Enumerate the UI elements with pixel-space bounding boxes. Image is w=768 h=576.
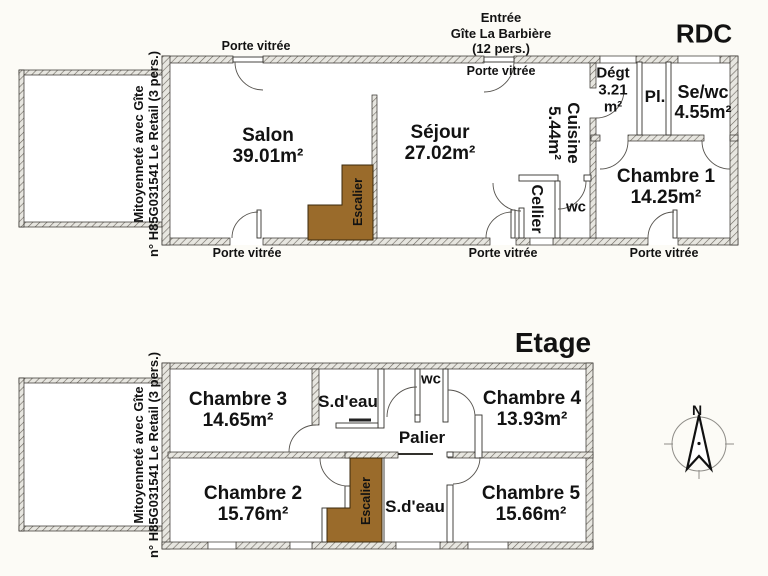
glass-door-label-bottom-left: Porte vitrée — [213, 246, 282, 260]
room-label-degagement: Dégt 3.21 m² — [596, 65, 629, 116]
shared-wall-note-etage: Mitoyenneté avec Gîte n° H85G031541 Le R… — [131, 352, 161, 558]
room-label-escalier-rdc: Escalier — [351, 178, 365, 226]
room-label-chambre4: Chambre 4 13.93m² — [483, 388, 581, 430]
room-label-sewc: Se/wc 4.55m² — [674, 82, 731, 122]
room-label-chambre3: Chambre 3 14.65m² — [189, 389, 287, 431]
compass-north-label: N — [692, 402, 702, 418]
compass-icon — [664, 415, 734, 479]
room-label-chambre1: Chambre 1 14.25m² — [617, 166, 715, 208]
room-label-sdeau-top: S.d'eau — [318, 392, 378, 412]
room-label-cuisine: Cuisine 5.44m² — [545, 102, 583, 163]
etage-title: Etage — [515, 327, 591, 359]
room-label-sejour: Séjour 27.02m² — [405, 122, 476, 164]
room-label-chambre5: Chambre 5 15.66m² — [482, 483, 580, 525]
rdc-title: RDC — [676, 19, 732, 50]
room-label-wc-etage: wc — [421, 371, 441, 388]
entrance-label: Entrée Gîte La Barbière (12 pers.) — [451, 10, 551, 57]
floorplan-page: RDC Entrée Gîte La Barbière (12 pers.) P… — [0, 0, 768, 576]
room-label-sdeau-bottom: S.d'eau — [385, 497, 445, 517]
room-label-salon: Salon 39.01m² — [233, 125, 304, 167]
room-label-palier: Palier — [399, 428, 445, 448]
room-label-chambre2: Chambre 2 15.76m² — [204, 483, 302, 525]
glass-door-label-top-left: Porte vitrée — [222, 39, 291, 53]
room-label-escalier-etage: Escalier — [359, 477, 373, 525]
room-label-cellier: Cellier — [527, 185, 545, 234]
glass-door-label-entry: Porte vitrée — [467, 64, 536, 78]
glass-door-label-bottom-right: Porte vitrée — [630, 246, 699, 260]
room-label-wc-rdc: wc — [566, 199, 586, 216]
shared-wall-note-rdc: Mitoyenneté avec Gîte n° H85G031541 Le R… — [131, 51, 161, 257]
glass-door-label-bottom-center: Porte vitrée — [469, 246, 538, 260]
rdc-plan — [19, 56, 738, 245]
room-label-placard: Pl. — [645, 87, 666, 107]
